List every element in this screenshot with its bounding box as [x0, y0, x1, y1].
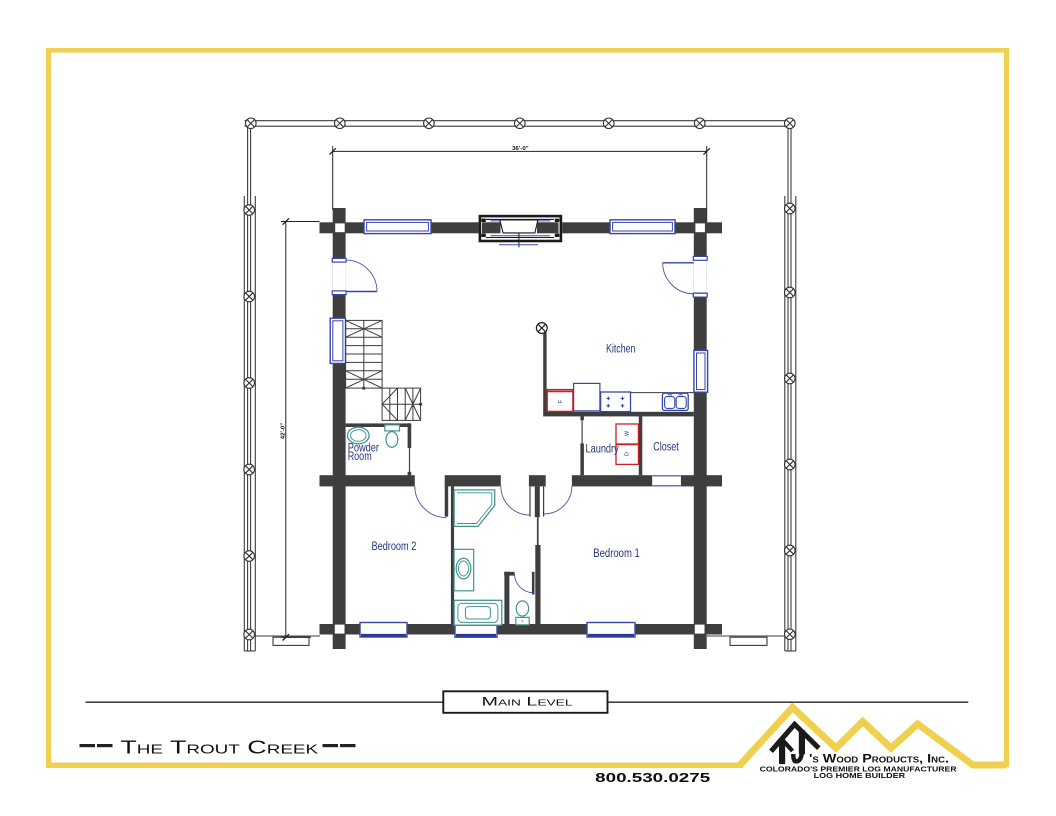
svg-text:D: D [625, 452, 631, 456]
svg-text:Kitchen: Kitchen [606, 344, 635, 356]
svg-text:Bedroom 1: Bedroom 1 [593, 548, 640, 560]
svg-text:LOG HOME BUILDER: LOG HOME BUILDER [814, 773, 906, 780]
svg-text:Closet: Closet [653, 441, 679, 453]
svg-text:42'-0": 42'-0" [281, 422, 287, 439]
svg-text:'s Wood Products, Inc.: 's Wood Products, Inc. [809, 751, 949, 765]
svg-text:The Trout Creek: The Trout Creek [120, 736, 318, 757]
svg-text:800.530.0275: 800.530.0275 [595, 770, 710, 785]
svg-text:Main Level: Main Level [482, 697, 574, 709]
svg-text:Laundry: Laundry [586, 444, 619, 456]
svg-text:Room: Room [348, 451, 372, 463]
svg-text:Bedroom 2: Bedroom 2 [372, 541, 417, 553]
svg-text:36'-0": 36'-0" [512, 146, 529, 152]
svg-text:W: W [625, 430, 631, 436]
